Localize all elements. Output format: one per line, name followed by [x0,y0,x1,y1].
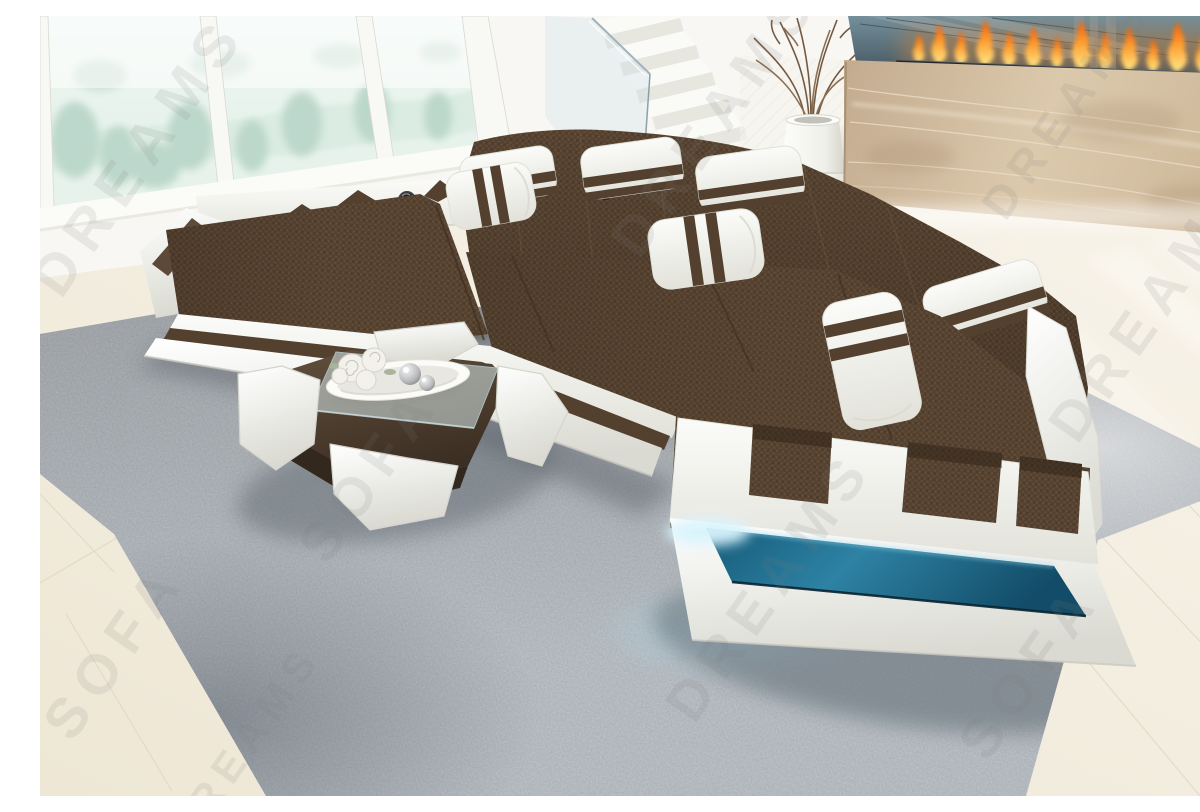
product-photo: DREAMS DREAMS DREAMS SOFA SOFA DREAMS DR… [40,16,1200,796]
